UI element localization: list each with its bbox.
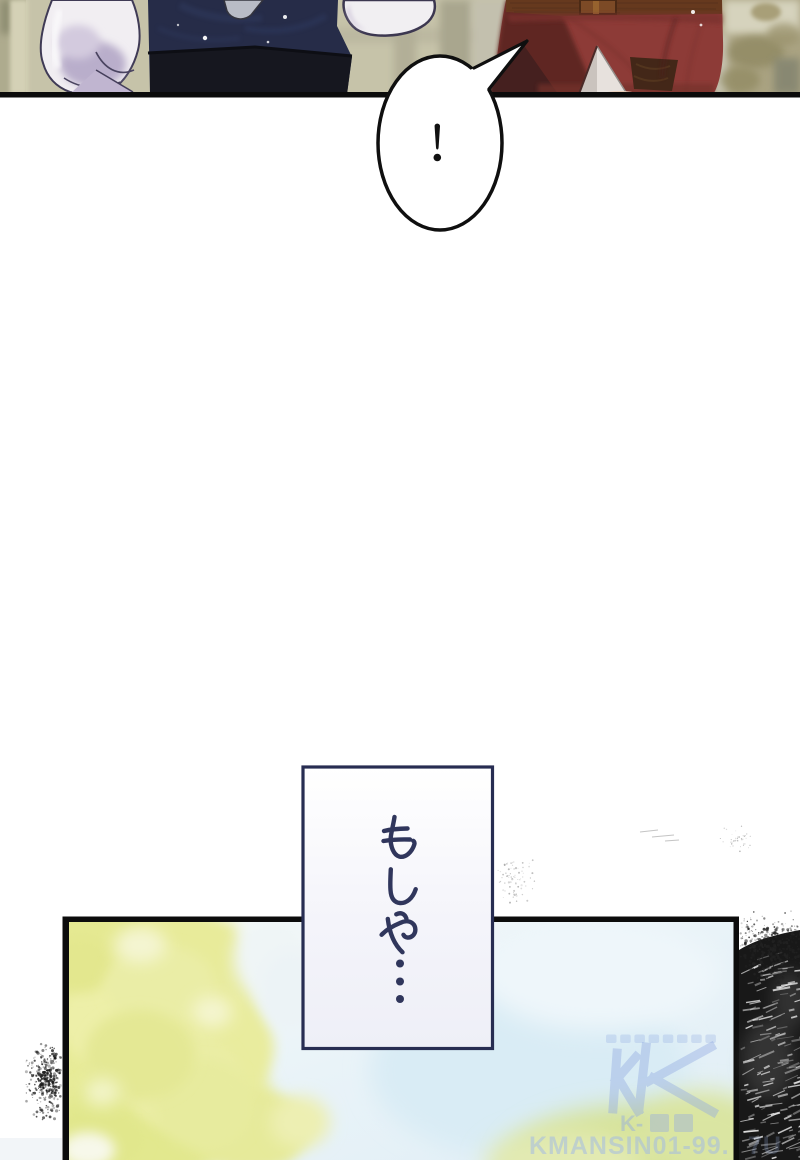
svg-text:7U: 7U xyxy=(748,1132,782,1160)
svg-text:KMANSIN01-99.: KMANSIN01-99. xyxy=(529,1132,730,1160)
